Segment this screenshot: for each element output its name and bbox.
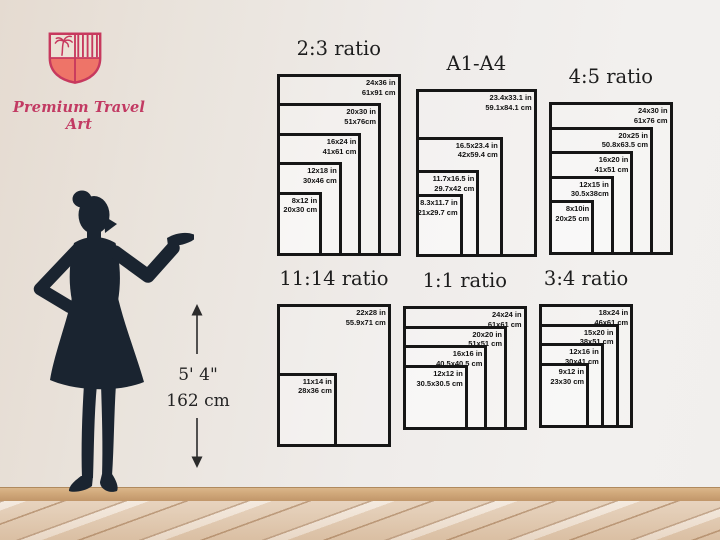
size-label: 11x14 in28x36 cm bbox=[298, 377, 332, 397]
size-label-inches: 23.4x33.1 in bbox=[485, 93, 531, 103]
size-diagram-11-14-ratio: 11:14 ratio22x28 in55.9x71 cm11x14 in28x… bbox=[277, 304, 391, 447]
size-label-inches: 20x30 in bbox=[344, 107, 376, 117]
size-label-cm: 30.5x30.5 cm bbox=[417, 379, 463, 389]
size-label-inches: 16.5x23.4 in bbox=[456, 141, 498, 151]
size-label-cm: 41x61 cm bbox=[323, 147, 357, 157]
size-label-cm: 29.7x42 cm bbox=[433, 184, 475, 194]
size-diagram-3-4-ratio: 3:4 ratio18x24 in46x61 cm15x20 in38x51 c… bbox=[539, 304, 633, 428]
size-label-inches: 18x24 in bbox=[594, 308, 628, 318]
size-label-inches: 24x24 in bbox=[488, 310, 522, 320]
size-label: 12x12 in30.5x30.5 cm bbox=[417, 369, 463, 389]
size-label: 11.7x16.5 in29.7x42 cm bbox=[433, 174, 475, 194]
size-diagram-2-3-ratio: 2:3 ratio24x36 in61x91 cm20x30 in51x76cm… bbox=[277, 74, 401, 256]
size-rect: 12x12 in30.5x30.5 cm bbox=[403, 365, 468, 430]
size-label-inches: 12x15 in bbox=[571, 180, 609, 190]
diagram-title: A1-A4 bbox=[447, 52, 507, 75]
height-imperial: 5' 4" bbox=[150, 363, 246, 389]
size-label-cm: 28x36 cm bbox=[298, 386, 332, 396]
size-label-inches: 12x18 in bbox=[303, 166, 337, 176]
size-label-inches: 8x12 in bbox=[283, 196, 317, 206]
size-diagram-1-1-ratio: 1:1 ratio24x24 in61x61 cm20x20 in51x51 c… bbox=[403, 306, 527, 430]
size-rect: 8x10in20x25 cm bbox=[549, 200, 594, 255]
shield-crest-icon bbox=[47, 30, 103, 86]
size-label: 16x20 in41x51 cm bbox=[595, 155, 629, 175]
size-label: 23.4x33.1 in59.1x84.1 cm bbox=[485, 93, 531, 113]
size-label-inches: 12x12 in bbox=[417, 369, 463, 379]
size-label-cm: 55.9x71 cm bbox=[346, 318, 386, 328]
size-label-inches: 20x20 in bbox=[468, 330, 502, 340]
size-label: 12x18 in30x46 cm bbox=[303, 166, 337, 186]
height-metric: 162 cm bbox=[150, 389, 246, 415]
arrow-up-icon bbox=[192, 304, 203, 354]
size-label: 16x24 in41x61 cm bbox=[323, 137, 357, 157]
size-label: 8x10in20x25 cm bbox=[555, 204, 589, 224]
size-label-cm: 42x59.4 cm bbox=[456, 150, 498, 160]
brand-name: Premium Travel Art bbox=[6, 99, 152, 133]
size-rect: 8.3x11.7 in21x29.7 cm bbox=[416, 194, 463, 257]
height-annotation: 5' 4" 162 cm bbox=[150, 363, 246, 414]
size-label-inches: 22x28 in bbox=[346, 308, 386, 318]
size-label-inches: 9x12 in bbox=[550, 367, 584, 377]
size-label-cm: 59.1x84.1 cm bbox=[485, 103, 531, 113]
size-label-inches: 16x20 in bbox=[595, 155, 629, 165]
size-rect: 11x14 in28x36 cm bbox=[277, 373, 337, 448]
size-label-inches: 16x24 in bbox=[323, 137, 357, 147]
size-label: 8.3x11.7 in21x29.7 cm bbox=[418, 198, 458, 218]
size-label-cm: 23x30 cm bbox=[550, 377, 584, 387]
diagram-title: 3:4 ratio bbox=[544, 267, 628, 290]
size-label-inches: 15x20 in bbox=[580, 328, 614, 338]
diagram-title: 4:5 ratio bbox=[569, 65, 653, 88]
size-label-inches: 11x14 in bbox=[298, 377, 332, 387]
size-label-cm: 20x30 cm bbox=[283, 205, 317, 215]
size-label: 20x25 in50.8x63.5 cm bbox=[602, 131, 648, 151]
size-label-inches: 11.7x16.5 in bbox=[433, 174, 475, 184]
size-label: 12x15 in30.5x38cm bbox=[571, 180, 609, 200]
size-label-inches: 24x36 in bbox=[362, 78, 396, 88]
size-label: 16.5x23.4 in42x59.4 cm bbox=[456, 141, 498, 161]
size-label-inches: 16x16 in bbox=[436, 349, 482, 359]
size-label: 24x36 in61x91 cm bbox=[362, 78, 396, 98]
size-label-inches: 20x25 in bbox=[602, 131, 648, 141]
size-label-cm: 21x29.7 cm bbox=[418, 208, 458, 218]
size-label-cm: 50.8x63.5 cm bbox=[602, 140, 648, 150]
size-label-cm: 41x51 cm bbox=[595, 165, 629, 175]
size-label-inches: 24x30 in bbox=[634, 106, 668, 116]
size-label: 9x12 in23x30 cm bbox=[550, 367, 584, 387]
diagram-title: 1:1 ratio bbox=[423, 269, 507, 292]
size-label-inches: 8.3x11.7 in bbox=[418, 198, 458, 208]
size-label: 8x12 in20x30 cm bbox=[283, 196, 317, 216]
wood-floor bbox=[0, 501, 720, 540]
size-diagram-4-5-ratio: 4:5 ratio24x30 in61x76 cm20x25 in50.8x63… bbox=[549, 102, 673, 255]
diagram-title: 11:14 ratio bbox=[279, 267, 388, 290]
size-label-cm: 61x91 cm bbox=[362, 88, 396, 98]
size-label: 24x30 in61x76 cm bbox=[634, 106, 668, 126]
woman-presenting-silhouette bbox=[26, 186, 198, 504]
size-label-inches: 8x10in bbox=[555, 204, 589, 214]
size-diagram-a1-a4: A1-A423.4x33.1 in59.1x84.1 cm16.5x23.4 i… bbox=[416, 89, 537, 257]
size-label-inches: 12x16 in bbox=[565, 347, 599, 357]
size-label-cm: 51x76cm bbox=[344, 117, 376, 127]
arrow-down-icon bbox=[192, 418, 203, 468]
size-label-cm: 30x46 cm bbox=[303, 176, 337, 186]
size-label-cm: 30.5x38cm bbox=[571, 189, 609, 199]
size-label: 22x28 in55.9x71 cm bbox=[346, 308, 386, 328]
size-label: 20x30 in51x76cm bbox=[344, 107, 376, 127]
size-rect: 9x12 in23x30 cm bbox=[539, 363, 589, 428]
diagram-title: 2:3 ratio bbox=[297, 37, 381, 60]
size-rect: 8x12 in20x30 cm bbox=[277, 192, 322, 257]
size-label-cm: 20x25 cm bbox=[555, 214, 589, 224]
size-label-cm: 61x76 cm bbox=[634, 116, 668, 126]
room-wall-background: Premium Travel Art bbox=[0, 0, 720, 540]
